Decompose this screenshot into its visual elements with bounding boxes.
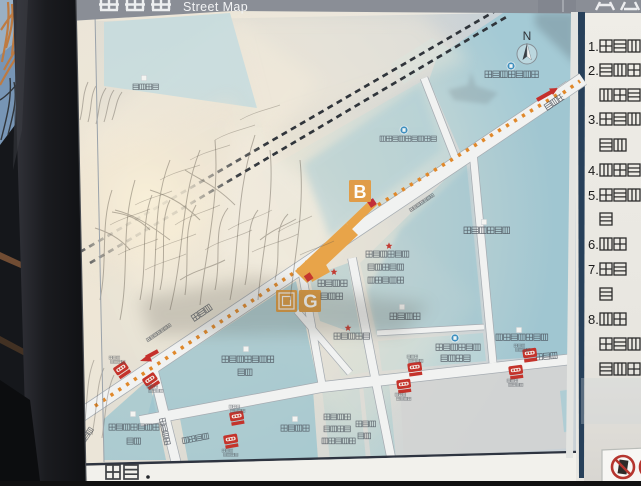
svg-text:1.: 1.: [588, 39, 599, 54]
svg-text:Street Map: Street Map: [183, 0, 248, 14]
svg-text:3.: 3.: [588, 112, 599, 127]
svg-text:2.: 2.: [588, 63, 599, 78]
svg-text:4.: 4.: [588, 163, 599, 178]
svg-text:N: N: [523, 29, 532, 43]
svg-text:8.: 8.: [588, 312, 599, 327]
svg-text:B: B: [354, 182, 367, 202]
svg-text:7.: 7.: [588, 262, 599, 277]
svg-text:5.: 5.: [588, 188, 599, 203]
svg-text:6.: 6.: [588, 237, 599, 252]
